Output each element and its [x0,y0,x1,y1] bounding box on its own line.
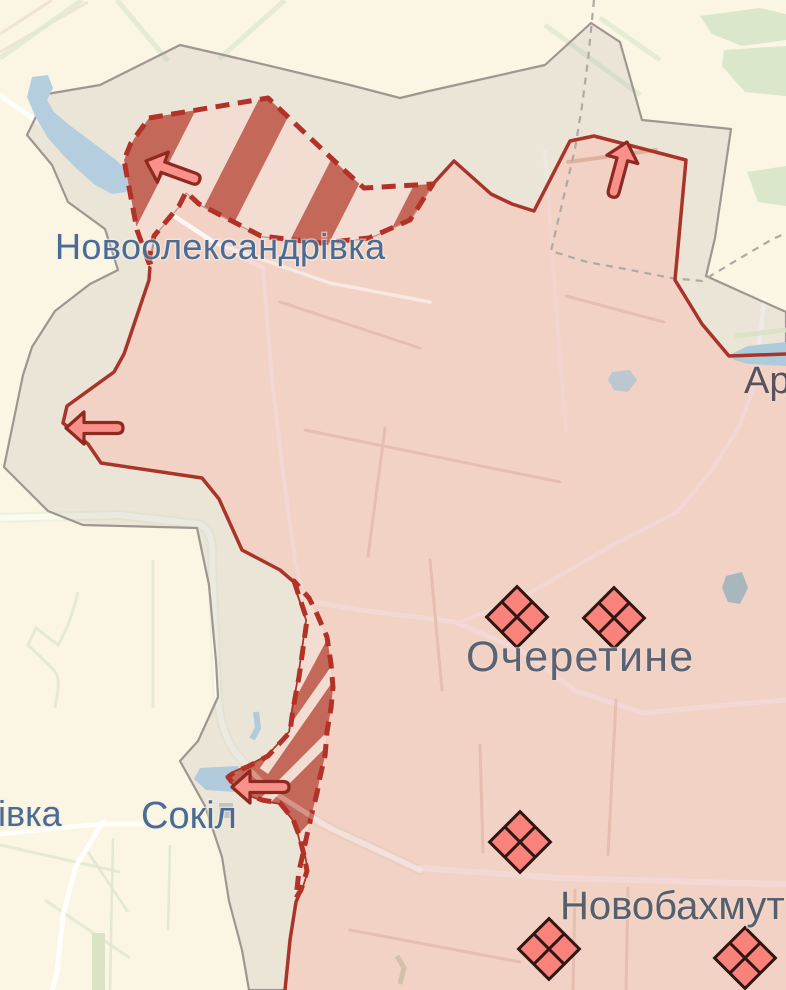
svg-text:Очеретине: Очеретине [466,633,694,681]
svg-text:Сокіл: Сокіл [141,795,237,837]
svg-text:Новобахмутівка: Новобахмутівка [560,884,786,928]
svg-text:Арх: Арх [744,360,786,402]
svg-text:івка: івка [0,793,63,834]
svg-text:Новоолександрівка: Новоолександрівка [55,226,386,267]
